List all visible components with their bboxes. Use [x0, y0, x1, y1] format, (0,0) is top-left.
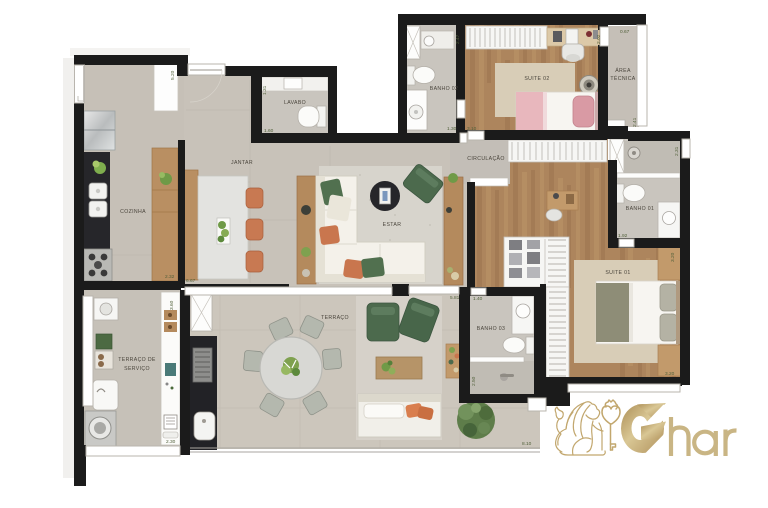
svg-text:SUITE 02: SUITE 02 [524, 76, 549, 82]
svg-text:ESTAR: ESTAR [383, 222, 402, 228]
svg-text:1.60: 1.60 [264, 128, 274, 134]
svg-text:5.81: 5.81 [450, 295, 460, 301]
svg-text:3.20: 3.20 [665, 371, 675, 377]
svg-text:1.92: 1.92 [618, 233, 628, 239]
svg-text:2.47: 2.47 [455, 34, 461, 44]
svg-text:CIRCULAÇÃO: CIRCULAÇÃO [467, 155, 505, 162]
svg-text:6.67: 6.67 [186, 278, 196, 284]
svg-text:ÁREA: ÁREA [615, 67, 631, 74]
svg-text:2.31: 2.31 [674, 146, 680, 156]
svg-text:2.30: 2.30 [166, 439, 176, 445]
svg-text:2.50: 2.50 [471, 376, 477, 386]
svg-text:1.40: 1.40 [473, 296, 483, 302]
svg-text:SERVIÇO: SERVIÇO [124, 366, 150, 372]
svg-text:3.60: 3.60 [169, 300, 175, 310]
svg-text:1.31: 1.31 [262, 85, 268, 95]
svg-text:2.02: 2.02 [596, 34, 602, 44]
svg-text:5.20: 5.20 [170, 70, 176, 80]
svg-text:LAVABO: LAVABO [284, 100, 306, 106]
svg-text:JANTAR: JANTAR [231, 160, 253, 166]
svg-text:COZINHA: COZINHA [120, 209, 146, 215]
svg-text:TERRAÇO: TERRAÇO [321, 315, 349, 321]
svg-text:BANHO 01: BANHO 01 [626, 206, 654, 212]
svg-text:BANHO 03: BANHO 03 [477, 326, 505, 332]
svg-text:BANHO 02: BANHO 02 [430, 86, 458, 92]
svg-text:2.32: 2.32 [165, 274, 175, 280]
svg-text:TERRAÇO DE: TERRAÇO DE [118, 357, 156, 363]
svg-text:3.20: 3.20 [670, 252, 676, 262]
svg-text:TÉCNICA: TÉCNICA [610, 75, 635, 82]
svg-text:8.10: 8.10 [522, 441, 532, 447]
svg-text:0.67: 0.67 [620, 29, 630, 35]
svg-text:2.41: 2.41 [632, 117, 638, 127]
svg-text:1.30: 1.30 [447, 126, 457, 132]
svg-text:SUITE 01: SUITE 01 [605, 270, 630, 276]
svg-text:3.10: 3.10 [467, 126, 477, 132]
